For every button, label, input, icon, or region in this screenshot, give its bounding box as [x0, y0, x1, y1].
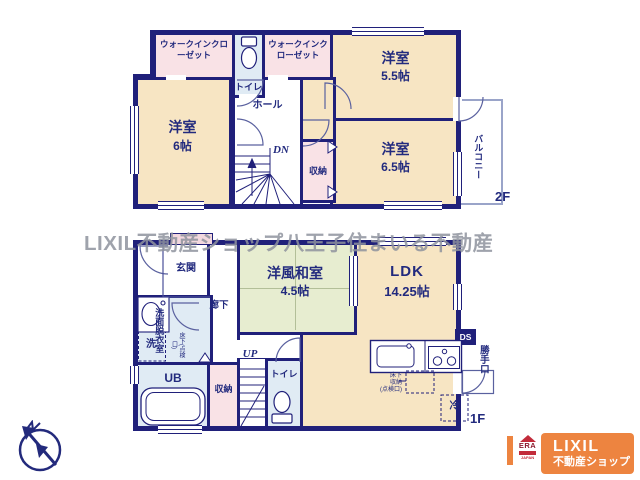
era-country-text: JAPAN [516, 456, 539, 460]
toilet-1f-label: トイレ [265, 369, 303, 380]
bedroom-55-name: 洋室 [330, 50, 461, 68]
lixil-logo: LIXIL 不動産ショップ [541, 433, 634, 474]
bedroom-65-size: 6.5帖 [330, 160, 461, 175]
laundry-label: 洗 [137, 339, 165, 352]
watermark-text: LIXIL不動産ショップ八王子住まいる不動産 [84, 226, 494, 256]
lixil-logo-text: LIXIL [553, 438, 634, 456]
japanese-room-name: 洋風和室 [233, 265, 357, 283]
wic-left-label: ウォークインクローゼット [156, 39, 232, 60]
washroom-label: 洗面脱衣室 [153, 299, 164, 361]
toilet-2f-label: トイレ [233, 82, 264, 93]
toilet-icon-1f [272, 392, 292, 424]
bedroom-65-name: 洋室 [330, 141, 461, 159]
stairs-up-label: UP [235, 348, 265, 362]
stairs-1f-treads [240, 369, 265, 426]
entrance-label: 玄関 [158, 263, 214, 276]
washroom-hatch-label: 床下(点検口) [169, 331, 184, 359]
brand-accent-bar [507, 436, 513, 465]
floor-storage-line3: (点検口) [376, 387, 402, 395]
era-logo: ERA JAPAN [516, 434, 539, 467]
ldk-size: 14.25帖 [353, 284, 461, 300]
floor-2f-label: 2F [495, 189, 510, 205]
corridor-label: 廊下 [200, 300, 238, 312]
floor-plan: ウォークインクローゼット トイレ ウォークインクローゼット 洋室 5.5帖 洋室… [0, 0, 640, 480]
hall-label: ホール [232, 100, 303, 113]
ldk-name: LDK [353, 263, 461, 282]
bedroom-6-name: 洋室 [133, 119, 232, 137]
bath-label: UB [133, 371, 213, 386]
bedroom-6-size: 6帖 [133, 139, 232, 154]
lixil-shop-text: 不動産ショップ [553, 456, 634, 469]
bathtub-icon [141, 388, 205, 425]
kitchen-icon [371, 341, 462, 373]
floor-storage-box [399, 371, 434, 393]
bedroom-55-size: 5.5帖 [330, 69, 461, 84]
duct-space-label: DS [455, 332, 476, 343]
back-door-label: 勝手口 [477, 339, 489, 379]
closet-1f-label: 収納 [207, 384, 240, 395]
fridge-label: 冷 [441, 401, 468, 414]
era-logo-text: ERA [516, 442, 539, 450]
balcony-label: バルコニー [472, 126, 483, 186]
wic-right-label: ウォークインクローゼット [265, 39, 331, 60]
floor-1f-label: 1F [470, 411, 485, 427]
japanese-room-size: 4.5帖 [233, 284, 357, 299]
toilet-icon-2f [242, 37, 257, 69]
compass-icon [10, 420, 70, 478]
stairs-down-label: DN [266, 144, 296, 158]
